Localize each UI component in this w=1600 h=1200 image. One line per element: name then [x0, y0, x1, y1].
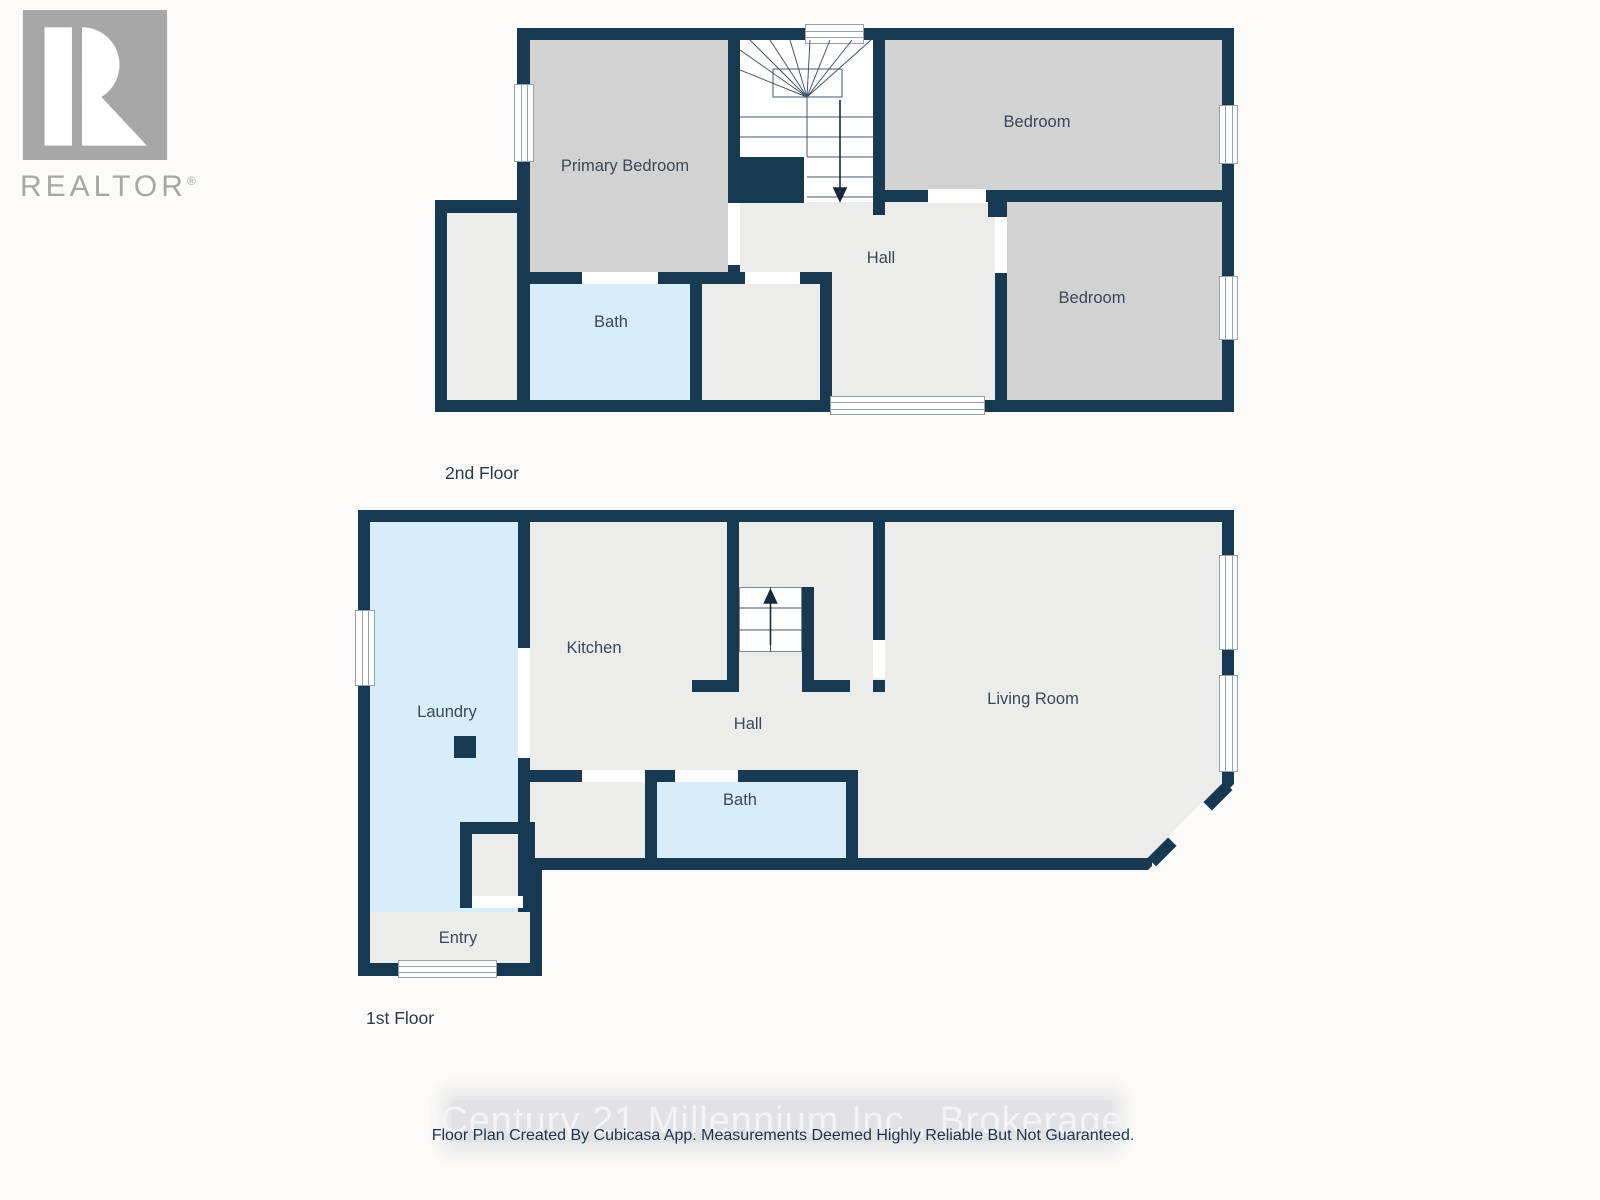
wall: [802, 680, 850, 692]
wall: [846, 770, 858, 870]
floor-plan-1st: Laundry Kitchen Hall Living Room Bath En…: [0, 0, 1600, 1200]
wall: [692, 680, 739, 692]
wall: [873, 680, 885, 692]
door-opening: [675, 770, 738, 782]
wall: [530, 858, 1152, 870]
disclaimer-text: Floor Plan Created By Cubicasa App. Meas…: [432, 1127, 1135, 1145]
floor-title-1st: 1st Floor: [366, 1008, 434, 1029]
wall: [358, 510, 370, 976]
room-label-hall-1st: Hall: [734, 716, 762, 733]
vestibule-interior: [472, 834, 523, 896]
room-label-laundry: Laundry: [417, 704, 477, 721]
floor-plan-page: REALTOR®: [0, 0, 1600, 1200]
entry-door: [398, 960, 497, 978]
wall: [738, 770, 858, 782]
room-label-entry: Entry: [439, 930, 478, 947]
window: [355, 610, 375, 686]
room-label-kitchen: Kitchen: [566, 640, 621, 657]
door-opening: [518, 648, 530, 758]
wall: [358, 510, 1234, 522]
room-label-bath-1st: Bath: [723, 792, 757, 809]
window: [1219, 555, 1238, 650]
wall: [873, 522, 885, 640]
wall: [530, 770, 582, 782]
wall: [727, 522, 739, 692]
door-opening: [873, 640, 885, 678]
laundry-appliance-icon: [454, 736, 476, 758]
window: [1219, 675, 1238, 772]
wall: [523, 822, 535, 908]
room-label-living-room: Living Room: [987, 691, 1079, 708]
door-opening: [472, 896, 523, 908]
wall: [645, 770, 657, 870]
wall: [645, 770, 675, 782]
stairs-up-icon: [739, 587, 802, 652]
wall: [460, 822, 472, 908]
wall: [802, 587, 814, 692]
door-opening: [582, 770, 645, 782]
